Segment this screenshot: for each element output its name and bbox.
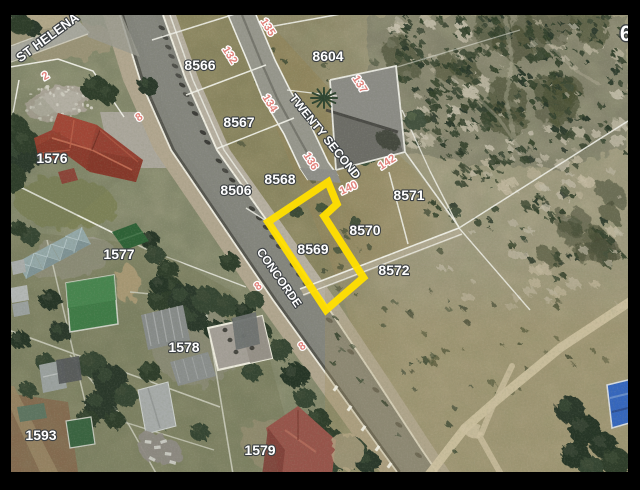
svg-text:8566: 8566 [184, 57, 215, 73]
svg-text:1579: 1579 [244, 442, 275, 458]
svg-text:8570: 8570 [349, 222, 380, 238]
svg-text:8569: 8569 [297, 241, 328, 257]
svg-text:8568: 8568 [264, 171, 295, 187]
svg-text:8506: 8506 [220, 182, 251, 198]
svg-text:8604: 8604 [312, 48, 343, 64]
svg-text:8567: 8567 [223, 114, 254, 130]
svg-text:1577: 1577 [103, 246, 134, 262]
svg-text:1593: 1593 [25, 427, 56, 443]
svg-text:8572: 8572 [378, 262, 409, 278]
svg-text:1578: 1578 [168, 339, 199, 355]
svg-text:8571: 8571 [393, 187, 424, 203]
svg-text:1576: 1576 [36, 150, 67, 166]
